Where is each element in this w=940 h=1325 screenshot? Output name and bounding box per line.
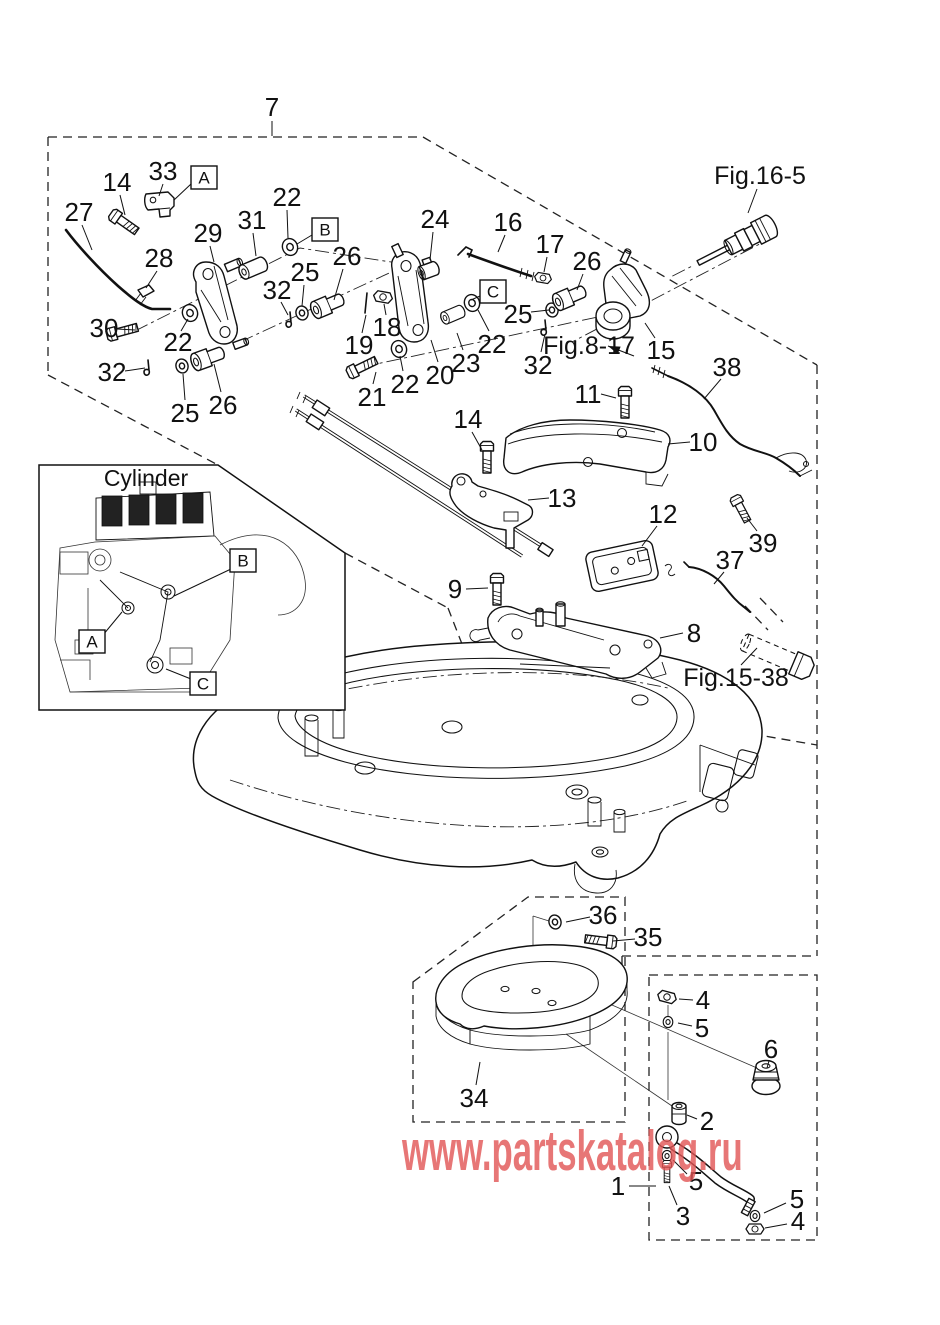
svg-text:2: 2: [700, 1106, 714, 1136]
part-15-lever: [596, 248, 649, 339]
svg-text:18: 18: [373, 312, 402, 342]
part-9-bolt: [491, 574, 504, 606]
part-label-4: 4: [679, 985, 710, 1015]
part-label-15: 15: [645, 323, 675, 365]
svg-text:30: 30: [90, 313, 119, 343]
part-label-Fig-8-17: Fig.8-17: [543, 332, 635, 360]
svg-text:22: 22: [273, 182, 302, 212]
svg-text:23: 23: [452, 348, 481, 378]
svg-text:Fig.8-17: Fig.8-17: [543, 332, 635, 360]
svg-text:Fig.16-5: Fig.16-5: [714, 162, 806, 190]
svg-text:14: 14: [454, 404, 483, 434]
part-3-bolt: [662, 1161, 671, 1183]
part-label-36: 36: [566, 900, 617, 930]
svg-text:21: 21: [358, 382, 387, 412]
part-label-19: 19: [345, 315, 374, 360]
part-label-25: 25: [504, 299, 549, 329]
part-label-8: 8: [660, 618, 701, 648]
part-label-25: 25: [171, 374, 200, 428]
part-19-pin: [365, 293, 367, 313]
svg-text:14: 14: [103, 167, 132, 197]
part-5-washer: [663, 1016, 673, 1027]
part-label-31: 31: [238, 205, 267, 256]
part-10-guide-plate: [504, 420, 670, 486]
part-label-21: 21: [358, 372, 387, 412]
part-label-26: 26: [573, 246, 602, 290]
svg-text:35: 35: [634, 922, 663, 952]
part-label-6: 6: [764, 1034, 778, 1068]
svg-text:25: 25: [291, 257, 320, 287]
part-25-washer: [294, 305, 309, 322]
svg-text:26: 26: [209, 390, 238, 420]
part-label-29: 29: [194, 218, 223, 262]
svg-text:33: 33: [149, 156, 178, 186]
svg-text:24: 24: [421, 204, 450, 234]
part-label-3: 3: [669, 1186, 690, 1231]
part-label-5: 5: [673, 1160, 703, 1196]
part-16-rod: [458, 247, 534, 281]
part-label-13: 13: [528, 483, 576, 513]
part-23-spacer: [439, 304, 467, 325]
part-39-bolt: [729, 494, 753, 525]
svg-text:39: 39: [749, 528, 778, 558]
svg-text:36: 36: [589, 900, 618, 930]
part-label-35: 35: [613, 922, 662, 952]
svg-text:B: B: [319, 221, 330, 240]
part-label-32: 32: [98, 357, 145, 387]
svg-text:12: 12: [649, 499, 678, 529]
part-label-16: 16: [494, 207, 523, 252]
part-2-bushing: [672, 1103, 686, 1125]
svg-text:1: 1: [611, 1171, 625, 1201]
svg-text:25: 25: [504, 299, 533, 329]
exploded-parts-diagram: Cylinder: [0, 0, 940, 1325]
ref-letter-label-A: A: [174, 166, 217, 200]
svg-text:C: C: [197, 675, 209, 694]
svg-text:32: 32: [263, 275, 292, 305]
part-26-bushing: [550, 282, 588, 312]
part-35-bolt: [584, 932, 617, 949]
svg-text:29: 29: [194, 218, 223, 248]
part-label-26: 26: [209, 364, 238, 420]
svg-text:32: 32: [98, 357, 127, 387]
part-22-washer: [180, 302, 200, 323]
part-label-33: 33: [149, 156, 178, 196]
svg-text:10: 10: [689, 427, 718, 457]
part-1-link-arm: [656, 1126, 755, 1216]
svg-text:C: C: [487, 283, 499, 302]
svg-text:37: 37: [716, 545, 745, 575]
svg-text:Fig.15-38: Fig.15-38: [683, 664, 789, 692]
svg-text:34: 34: [460, 1083, 489, 1113]
svg-text:38: 38: [713, 352, 742, 382]
parts-diagram-page: Cylinder: [0, 0, 940, 1325]
part-label-12: 12: [642, 499, 677, 546]
svg-text:6: 6: [764, 1034, 778, 1064]
part-4-nut: [656, 989, 677, 1004]
svg-text:26: 26: [333, 241, 362, 271]
svg-text:20: 20: [426, 360, 455, 390]
svg-text:13: 13: [548, 483, 577, 513]
part-label-20: 20: [426, 340, 455, 390]
part-22-washer-c: [462, 292, 482, 313]
part-label-26: 26: [333, 241, 362, 300]
svg-text:9: 9: [448, 574, 462, 604]
svg-text:B: B: [237, 552, 248, 571]
part-label-14: 14: [103, 167, 132, 215]
part-label-5: 5: [678, 1013, 709, 1043]
svg-text:3: 3: [676, 1201, 690, 1231]
svg-text:26: 26: [573, 246, 602, 276]
svg-text:5: 5: [689, 1166, 703, 1196]
svg-text:15: 15: [647, 335, 676, 365]
part-22-washer-b: [280, 236, 300, 257]
fig-8-17-connector: [667, 213, 780, 287]
part-label-4: 4: [765, 1206, 805, 1236]
svg-text:27: 27: [65, 197, 94, 227]
part-label-22: 22: [391, 356, 420, 399]
svg-text:16: 16: [494, 207, 523, 237]
part-4-nut: [746, 1224, 764, 1234]
svg-text:A: A: [198, 169, 210, 188]
svg-text:22: 22: [391, 369, 420, 399]
part-label-37: 37: [714, 545, 744, 584]
part-12-block: [585, 539, 660, 592]
part-label-27: 27: [65, 197, 94, 250]
svg-text:5: 5: [695, 1013, 709, 1043]
part-label-23: 23: [452, 333, 481, 378]
part-36-washer: [547, 914, 562, 931]
svg-text:28: 28: [145, 243, 174, 273]
part-26-bushing: [308, 290, 346, 320]
svg-text:25: 25: [171, 398, 200, 428]
part-label-39: 39: [747, 518, 777, 558]
part-label-Fig-15-38: Fig.15-38: [683, 648, 789, 692]
svg-text:7: 7: [265, 92, 279, 122]
part-label-22: 22: [273, 182, 302, 238]
part-11-bolt: [619, 387, 632, 419]
part-25-washer: [174, 358, 189, 375]
part-6-grommet: [752, 1061, 780, 1095]
svg-text:8: 8: [687, 618, 701, 648]
part-label-2: 2: [687, 1106, 714, 1136]
svg-text:17: 17: [536, 229, 565, 259]
part-17-nut: [534, 272, 552, 284]
svg-text:22: 22: [164, 327, 193, 357]
svg-text:4: 4: [791, 1206, 805, 1236]
part-label-25: 25: [291, 257, 320, 306]
svg-text:19: 19: [345, 330, 374, 360]
part-5-washer: [750, 1210, 760, 1221]
part-label-38: 38: [704, 352, 741, 399]
part-label-32: 32: [263, 275, 292, 315]
part-label-22: 22: [164, 319, 193, 357]
svg-text:A: A: [86, 633, 98, 652]
part-label-34: 34: [460, 1062, 489, 1113]
svg-text:4: 4: [696, 985, 710, 1015]
part-14-bolt: [481, 442, 494, 474]
part-label-22: 22: [478, 310, 507, 359]
svg-text:11: 11: [575, 379, 602, 409]
part-label-11: 11: [575, 379, 617, 409]
svg-text:22: 22: [478, 329, 507, 359]
part-label-17: 17: [536, 229, 565, 272]
part-34-damper: [436, 945, 627, 1050]
part-label-14: 14: [454, 404, 483, 450]
part-26-bushing: [189, 343, 227, 372]
part-label-28: 28: [145, 243, 174, 288]
part-label-7: 7: [265, 92, 279, 136]
part-label-24: 24: [421, 204, 450, 260]
svg-text:31: 31: [238, 205, 267, 235]
part-label-10: 10: [668, 427, 717, 457]
inset-title: Cylinder: [104, 465, 189, 491]
part-label-9: 9: [448, 574, 488, 604]
part-18-nut: [373, 290, 394, 304]
part-label-Fig-16-5: Fig.16-5: [714, 162, 806, 213]
part-5-washer: [662, 1150, 672, 1161]
